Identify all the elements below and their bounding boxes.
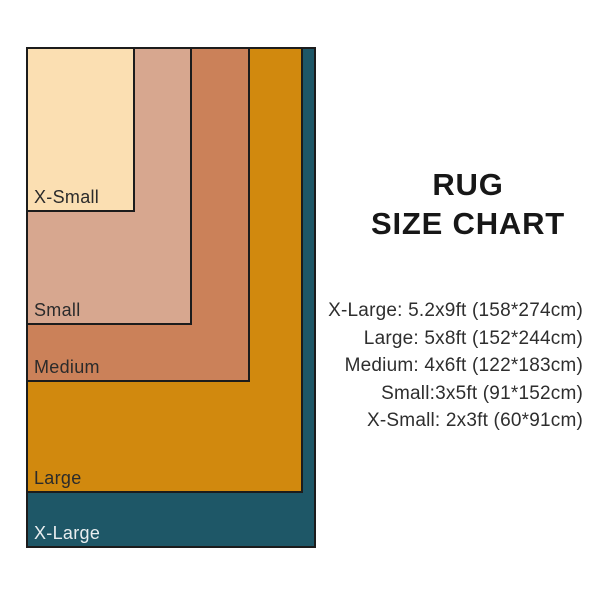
page-title-line2: SIZE CHART: [371, 206, 565, 241]
rug-rect-x-small: X-Small: [26, 47, 135, 212]
spec-line-large: Large: 5x8ft (152*244cm): [310, 325, 583, 353]
nested-rug-diagram: X-Large Large Medium Small X-Small: [26, 47, 318, 550]
rug-label: Large: [34, 467, 82, 489]
spec-line-x-large: X-Large: 5.2x9ft (158*274cm): [310, 297, 583, 325]
rug-label: Small: [34, 299, 81, 321]
rug-label: X-Small: [34, 186, 99, 208]
size-spec-list: X-Large: 5.2x9ft (158*274cm) Large: 5x8f…: [310, 297, 583, 435]
rug-size-chart-infographic: X-Large Large Medium Small X-Small RUG S…: [0, 0, 600, 600]
spec-line-x-small: X-Small: 2x3ft (60*91cm): [310, 407, 583, 435]
spec-line-small: Small:3x5ft (91*152cm): [310, 380, 583, 408]
page-title: RUG SIZE CHART: [330, 165, 600, 243]
spec-line-medium: Medium: 4x6ft (122*183cm): [310, 352, 583, 380]
page-title-line1: RUG: [432, 167, 503, 202]
rug-label: X-Large: [34, 522, 100, 544]
rug-label: Medium: [34, 356, 100, 378]
